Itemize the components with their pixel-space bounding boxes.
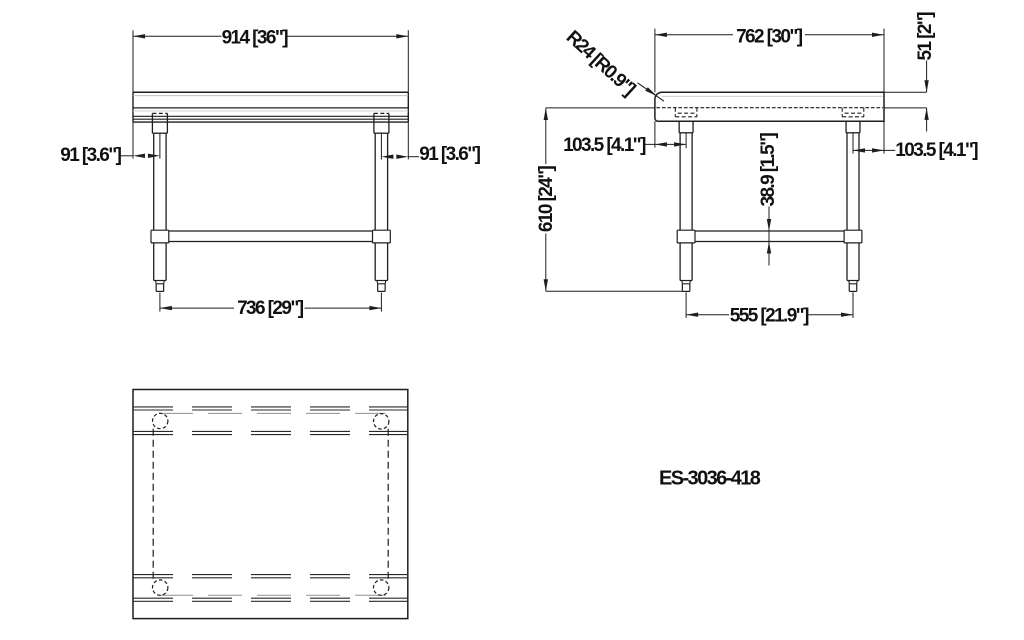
- svg-text:91 [3.6"]: 91 [3.6"]: [60, 145, 121, 166]
- svg-text:ES-3036-418: ES-3036-418: [659, 468, 761, 490]
- svg-text:610 [24"]: 610 [24"]: [536, 165, 557, 232]
- svg-text:555 [21.9"]: 555 [21.9"]: [730, 305, 809, 326]
- svg-text:736 [29"]: 736 [29"]: [237, 298, 304, 319]
- svg-text:914 [36"]: 914 [36"]: [222, 27, 289, 48]
- svg-text:38.9 [1.5"]: 38.9 [1.5"]: [758, 132, 779, 206]
- svg-text:103.5 [4.1"]: 103.5 [4.1"]: [895, 140, 978, 161]
- svg-text:103.5 [4.1"]: 103.5 [4.1"]: [563, 135, 646, 156]
- svg-text:762 [30"]: 762 [30"]: [736, 27, 803, 48]
- svg-text:51 [2"]: 51 [2"]: [915, 12, 936, 61]
- svg-text:91 [3.6"]: 91 [3.6"]: [419, 144, 480, 165]
